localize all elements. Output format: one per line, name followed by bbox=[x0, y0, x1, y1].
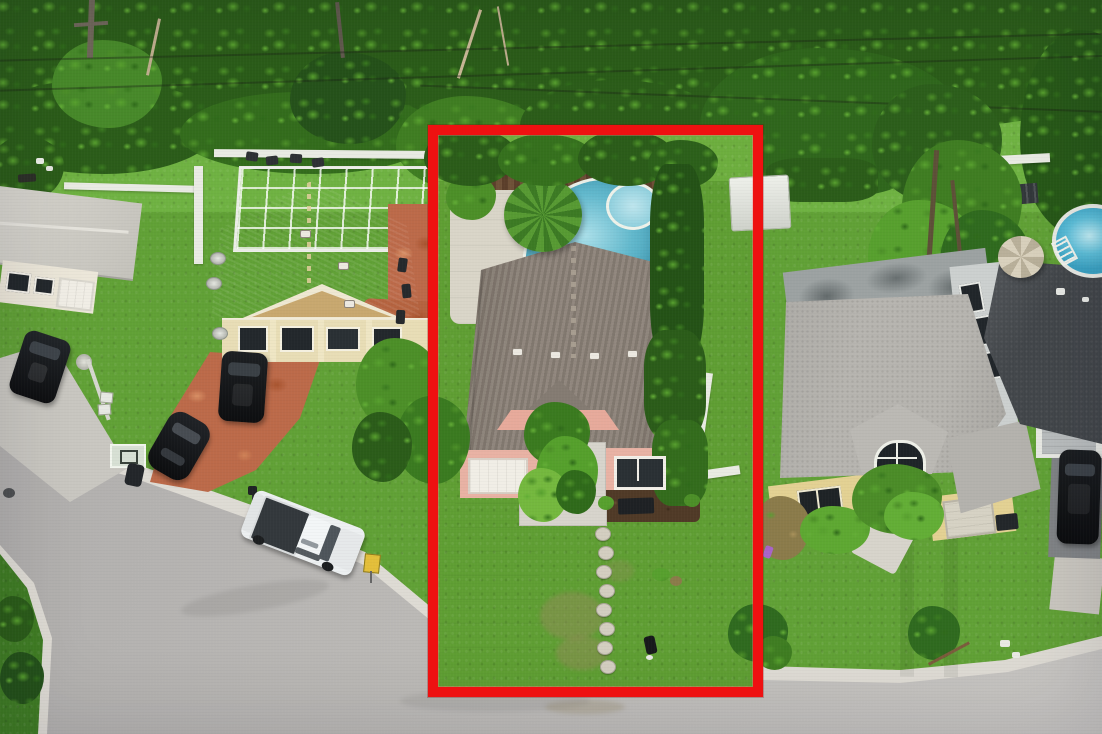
yard-sign bbox=[363, 553, 381, 574]
property-highlight-box bbox=[428, 125, 763, 697]
roof-ridge bbox=[0, 222, 129, 234]
windshield bbox=[28, 340, 61, 361]
island-bush bbox=[0, 652, 44, 704]
windshield bbox=[1065, 463, 1095, 476]
yard-debris bbox=[1012, 652, 1020, 658]
manhole-cover bbox=[3, 488, 15, 498]
aerial-photo bbox=[0, 0, 1102, 734]
patio-item bbox=[266, 155, 279, 165]
white-fence bbox=[194, 166, 203, 264]
sunroof-glint bbox=[27, 361, 49, 383]
hoop-square bbox=[120, 450, 138, 464]
roof-glint bbox=[232, 383, 253, 406]
window-mullion bbox=[877, 457, 917, 459]
rear-window bbox=[159, 446, 186, 467]
window bbox=[5, 271, 31, 294]
windshield bbox=[228, 362, 261, 377]
black-suv bbox=[218, 350, 269, 423]
yard-sign-post bbox=[370, 571, 372, 583]
roof-vent bbox=[344, 300, 355, 308]
overhanging-tree bbox=[352, 412, 412, 482]
patio-furniture bbox=[397, 257, 408, 272]
garden-bench bbox=[18, 173, 37, 182]
satellite-dish bbox=[212, 327, 228, 340]
patio-umbrella bbox=[998, 236, 1044, 278]
roof-ridge bbox=[307, 182, 311, 302]
yard-debris bbox=[1000, 640, 1010, 647]
porch-window bbox=[280, 326, 314, 352]
sidewalk-patch bbox=[1049, 554, 1102, 615]
patio-item bbox=[311, 157, 324, 168]
patio-furniture bbox=[401, 284, 411, 299]
patio-furniture bbox=[396, 310, 406, 324]
patio-item bbox=[290, 154, 303, 164]
tree-canopy bbox=[290, 52, 406, 144]
windshield bbox=[171, 421, 202, 446]
street-sign bbox=[98, 404, 112, 416]
ac-unit bbox=[995, 513, 1019, 531]
street-sign bbox=[100, 391, 114, 403]
roof-vent bbox=[300, 230, 311, 238]
lawn-chair bbox=[36, 158, 44, 164]
skylight bbox=[1056, 288, 1065, 295]
porch-window bbox=[326, 327, 360, 351]
patio-item bbox=[245, 151, 258, 162]
front-palm-cluster bbox=[884, 492, 944, 540]
porch-column bbox=[318, 320, 324, 362]
satellite-dish bbox=[206, 277, 222, 290]
porch-column bbox=[270, 320, 276, 362]
skylight bbox=[1082, 297, 1089, 302]
roof-vent bbox=[338, 262, 349, 270]
porch-window bbox=[238, 326, 268, 352]
window bbox=[33, 276, 55, 295]
road-stain bbox=[545, 700, 625, 714]
black-suv bbox=[1056, 449, 1101, 544]
garage-door bbox=[56, 277, 95, 311]
roof-glint bbox=[1067, 484, 1090, 515]
lawn-chair bbox=[46, 166, 53, 171]
satellite-dish bbox=[210, 252, 226, 265]
